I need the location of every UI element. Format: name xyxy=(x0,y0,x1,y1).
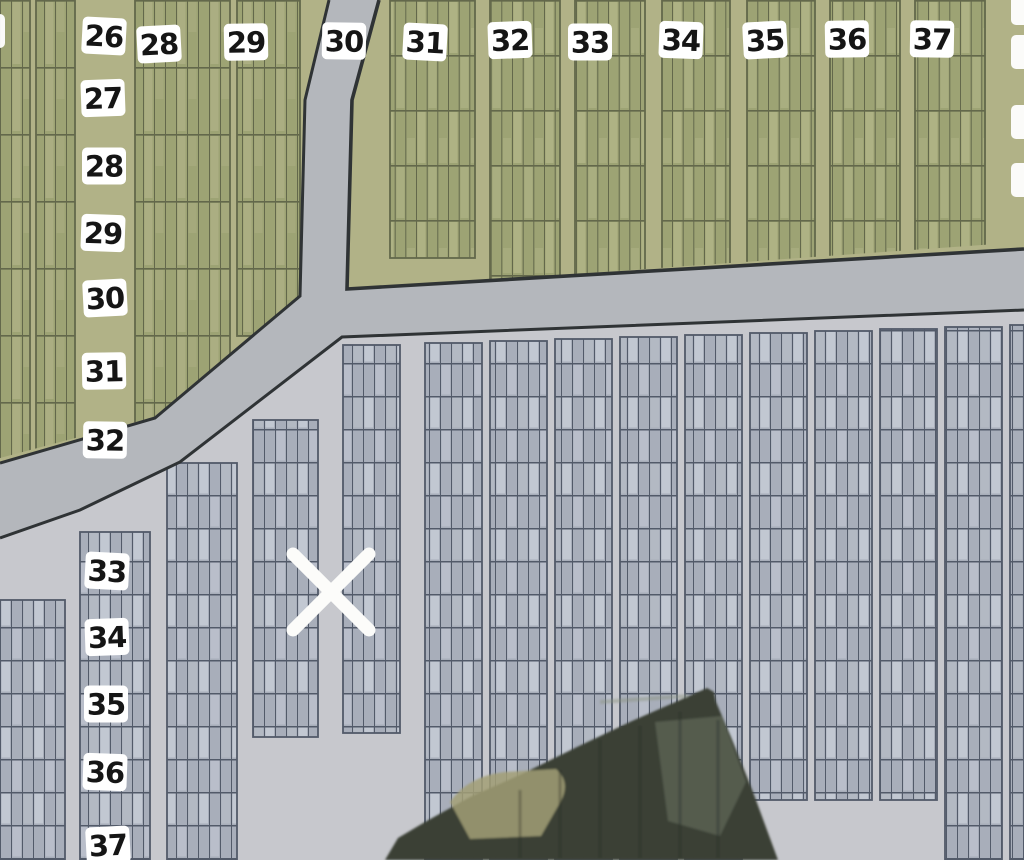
plot-row-label: 30 xyxy=(82,278,128,317)
plot-row-label: 28 xyxy=(82,148,126,185)
plot-column-label: 32 xyxy=(487,21,532,60)
plot-row-label-text: 27 xyxy=(83,81,123,116)
partial-plot-label xyxy=(0,14,5,48)
plot-column-label-text: 30 xyxy=(325,24,364,59)
plot-row-label: 31 xyxy=(82,352,127,390)
plot-block xyxy=(167,463,237,860)
plot-row-label: 37 xyxy=(85,825,131,860)
plot-block xyxy=(0,0,30,470)
plot-row-label-text: 36 xyxy=(85,755,125,790)
plot-block xyxy=(815,331,872,800)
plot-column-label-text: 36 xyxy=(828,22,867,57)
plot-row-label: 27 xyxy=(80,79,125,118)
plot-row-label: 29 xyxy=(80,214,125,253)
plot-column-label: 29 xyxy=(224,23,269,61)
plot-column-label: 37 xyxy=(910,20,955,58)
plot-column-label: 36 xyxy=(825,20,870,58)
partial-plot-label xyxy=(1011,105,1024,139)
plot-column-label: 35 xyxy=(742,20,788,59)
plot-column-label: 30 xyxy=(322,22,367,60)
plot-row-label-text: 31 xyxy=(85,354,124,389)
plot-column-label: 34 xyxy=(658,21,703,60)
plot-row-label-text: 32 xyxy=(86,423,125,458)
plot-row-label-text: 29 xyxy=(83,216,123,251)
plot-column-label: 33 xyxy=(568,24,612,61)
plot-column-label-text: 37 xyxy=(913,22,952,57)
plot-column-label-text: 29 xyxy=(227,25,266,60)
plot-row-label-text: 34 xyxy=(87,620,127,655)
plot-block xyxy=(253,420,318,737)
plot-block xyxy=(880,329,937,800)
plot-block xyxy=(750,333,807,800)
map-canvas: 2829303132333435363726272829303132333435… xyxy=(0,0,1024,860)
partial-plot-label xyxy=(1011,163,1024,197)
plot-row-label: 26 xyxy=(81,16,127,55)
plot-column-label-text: 34 xyxy=(661,23,701,58)
cemetery-plot-map: 2829303132333435363726272829303132333435… xyxy=(0,0,1024,860)
plot-column-label: 31 xyxy=(402,22,448,61)
plot-block xyxy=(36,0,75,470)
plot-row-label-text: 26 xyxy=(84,18,124,54)
plot-column-label-text: 35 xyxy=(745,22,785,58)
partial-plot-label xyxy=(1011,0,1024,25)
partial-plot-label xyxy=(1011,35,1024,69)
plot-block xyxy=(0,600,65,860)
plot-block xyxy=(1010,325,1024,860)
plot-row-label: 32 xyxy=(83,421,128,459)
plot-row-label: 35 xyxy=(84,686,128,723)
plot-column-label: 28 xyxy=(136,24,182,63)
plot-row-label-text: 33 xyxy=(87,553,127,589)
plot-column-label-text: 31 xyxy=(405,24,445,60)
plot-column-label-text: 28 xyxy=(139,26,179,62)
plot-row-label: 36 xyxy=(82,753,127,792)
plot-row-label: 34 xyxy=(84,618,129,657)
plot-row-label-text: 37 xyxy=(88,827,128,860)
plot-row-label-text: 35 xyxy=(87,687,125,721)
plot-row-label-text: 28 xyxy=(85,149,123,183)
plot-block xyxy=(343,345,400,733)
plot-row-label-text: 30 xyxy=(85,280,125,316)
plot-block xyxy=(945,327,1002,860)
plot-column-label-text: 33 xyxy=(571,25,609,59)
plot-column-label-text: 32 xyxy=(490,23,530,58)
plot-row-label: 33 xyxy=(84,551,130,590)
